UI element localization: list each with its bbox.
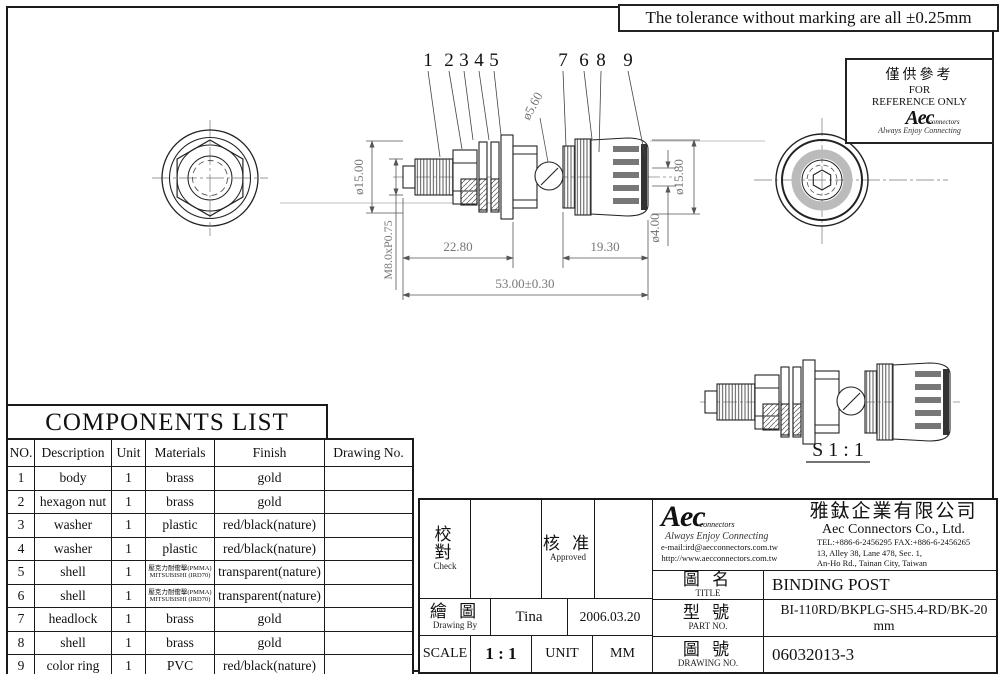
check-label-en: Check — [434, 562, 457, 571]
drawing-number: 06032013-3 — [772, 645, 854, 665]
row-3-material: plastic — [146, 514, 215, 538]
row-6-desc: shell — [35, 585, 112, 609]
row-1-material: brass — [146, 467, 215, 491]
row-8-no: 8 — [8, 632, 35, 656]
drawn-by-label-zh: 繪 圖 — [430, 603, 480, 621]
title-label-en: TITLE — [696, 589, 721, 598]
company-name-en: Aec Connectors Co., Ltd. — [822, 522, 965, 537]
part-no-label-en: PART NO. — [689, 622, 728, 631]
check-label-zh: 校 對 — [420, 526, 470, 562]
drawing-no-label-cell: 圖 號 DRAWING NO. — [653, 637, 764, 672]
title-block: 校 對 Check 核 准 Approved 繪 圖 Drawing By Ti… — [418, 498, 998, 674]
row-5-finish: transparent(nature) — [215, 561, 325, 585]
row-6-material: 壓克力耐衝擊(PMMA)MITSUBISHI (IRD70) — [146, 585, 215, 609]
reference-line1: FOR — [909, 84, 930, 97]
dim-cap-diameter: ø15.80 — [671, 159, 686, 195]
row-5-material: 壓克力耐衝擊(PMMA)MITSUBISHI (IRD70) — [146, 561, 215, 585]
row-3-no: 3 — [8, 514, 35, 538]
row-9-no: 9 — [8, 655, 35, 674]
row-4-finish: red/black(nature) — [215, 538, 325, 562]
row-5-desc: shell — [35, 561, 112, 585]
row-2-drawing-no — [325, 491, 412, 515]
aec-logo-titleblock-text: Aecconnectors — [661, 503, 705, 530]
row-5-drawing-no — [325, 561, 412, 585]
row-9-unit: 1 — [112, 655, 146, 674]
company-name-zh: 雅鈦企業有限公司 — [809, 502, 977, 522]
dim-thread-spec: M8.0xP0.75 — [381, 220, 395, 279]
aec-logo-sub: connectors — [929, 119, 960, 125]
dim-pin-diameter: ø4.00 — [647, 213, 662, 242]
row-9-drawing-no — [325, 655, 412, 674]
row-9-material: PVC — [146, 655, 215, 674]
callout-3: 3 — [459, 50, 469, 71]
approved-label-zh: 核 准 — [543, 535, 593, 553]
row-7-drawing-no — [325, 608, 412, 632]
row-4-material: plastic — [146, 538, 215, 562]
row-7-unit: 1 — [112, 608, 146, 632]
row-7-material: brass — [146, 608, 215, 632]
row-3-finish: red/black(nature) — [215, 514, 325, 538]
aec-logo-text: Aecconnectors — [905, 109, 933, 127]
callout-1: 1 — [423, 50, 433, 71]
front-view-left — [152, 120, 268, 236]
col-header-materials: Materials — [146, 440, 215, 467]
scale-value: 1 : 1 — [485, 644, 516, 664]
dim-length-left: 22.80 — [443, 239, 472, 254]
col-header-description: Description — [35, 440, 112, 467]
unit-label-cell: UNIT — [532, 636, 593, 672]
drawing-no-value-cell: 06032013-3 — [764, 637, 996, 672]
part-no-label-cell: 型 號 PART NO. — [653, 600, 764, 636]
col-header-drawing-no: Drawing No. — [325, 440, 412, 467]
company-tel-fax: TEL:+886-6-2456295 FAX:+886-6-2456265 — [817, 537, 970, 548]
title-label-zh: 圖 名 — [683, 571, 733, 589]
scale-label-cell: SCALE — [420, 636, 471, 672]
dim-body-diameter: ø15.00 — [351, 159, 366, 195]
row-7-desc: headlock — [35, 608, 112, 632]
components-list-title: COMPONENTS LIST — [6, 404, 328, 442]
tolerance-note-text: The tolerance without marking are all ±0… — [645, 8, 971, 28]
dim-hole-diameter: ø5.60 — [519, 89, 546, 122]
row-8-drawing-no — [325, 632, 412, 656]
company-logo-cell: Aecconnectors Always Enjoy Connecting e-… — [653, 500, 791, 570]
drawing-no-label-zh: 圖 號 — [683, 641, 733, 659]
drawn-by-label-cell: 繪 圖 Drawing By — [420, 599, 491, 635]
row-3-drawing-no — [325, 514, 412, 538]
row-3-unit: 1 — [112, 514, 146, 538]
aec-logo-titleblock: Aecconnectors Always Enjoy Connecting — [661, 503, 768, 541]
row-9-finish: red/black(nature) — [215, 655, 325, 674]
row-2-material: brass — [146, 491, 215, 515]
components-list-table: NO. Description Unit Materials Finish Dr… — [6, 438, 414, 674]
company-info-cell: 雅鈦企業有限公司 Aec Connectors Co., Ltd. TEL:+8… — [791, 500, 996, 570]
company-address2: An-Ho Rd., Tainan City, Taiwan — [817, 558, 970, 569]
callout-7: 7 — [558, 50, 568, 71]
row-6-no: 6 — [8, 585, 35, 609]
drawn-by-value-cell: Tina — [491, 599, 568, 635]
callout-8: 8 — [596, 50, 606, 71]
row-8-material: brass — [146, 632, 215, 656]
row-2-unit: 1 — [112, 491, 146, 515]
callout-4: 4 — [474, 50, 484, 71]
row-1-finish: gold — [215, 467, 325, 491]
drawn-by-label-en: Drawing By — [433, 621, 477, 630]
scale-label: SCALE — [423, 646, 467, 662]
row-1-no: 1 — [8, 467, 35, 491]
row-7-no: 7 — [8, 608, 35, 632]
callout-2: 2 — [444, 50, 454, 71]
callout-5: 5 — [489, 50, 499, 71]
title-value-cell: BINDING POST — [764, 571, 996, 599]
row-3-desc: washer — [35, 514, 112, 538]
dimensions — [366, 118, 700, 300]
reference-zh: 僅供參考 — [886, 68, 954, 84]
drawing-title: BINDING POST — [772, 575, 890, 595]
row-1-desc: body — [35, 467, 112, 491]
col-header-finish: Finish — [215, 440, 325, 467]
check-value-cell — [471, 500, 542, 598]
reference-only-stamp: 僅供參考 FOR REFERENCE ONLY Aecconnectors Al… — [845, 58, 994, 144]
row-8-finish: gold — [215, 632, 325, 656]
col-header-unit: Unit — [112, 440, 146, 467]
section-view-main — [403, 135, 648, 219]
approved-value-cell — [595, 500, 652, 598]
row-6-finish: transparent(nature) — [215, 585, 325, 609]
row-6-drawing-no — [325, 585, 412, 609]
approved-label-cell: 核 准 Approved — [542, 500, 595, 598]
part-no-label-zh: 型 號 — [683, 604, 733, 622]
company-website: http://www.aecconnectors.com.tw — [661, 553, 778, 564]
row-2-finish: gold — [215, 491, 325, 515]
row-1-unit: 1 — [112, 467, 146, 491]
unit-value-cell: MM — [593, 636, 652, 672]
row-7-finish: gold — [215, 608, 325, 632]
row-5-unit: 1 — [112, 561, 146, 585]
company-email: e-mail:ird@aecconnectors.com.tw — [661, 542, 778, 553]
callout-9: 9 — [623, 50, 633, 71]
row-4-no: 4 — [8, 538, 35, 562]
scale-view-label: S 1 : 1 — [812, 439, 864, 461]
row-4-unit: 1 — [112, 538, 146, 562]
row-4-desc: washer — [35, 538, 112, 562]
row-1-drawing-no — [325, 467, 412, 491]
approved-label-en: Approved — [550, 553, 586, 562]
part-number: BI-110RD/BKPLG-SH5.4-RD/BK-20mm — [772, 602, 996, 633]
row-4-drawing-no — [325, 538, 412, 562]
check-label-cell: 校 對 Check — [420, 500, 471, 598]
dim-length-total: 53.00±0.30 — [495, 276, 554, 291]
scale-value-cell: 1 : 1 — [471, 636, 532, 672]
drawing-no-label-en: DRAWING NO. — [678, 659, 738, 668]
engineering-drawing-sheet: 1 2 3 4 5 7 6 8 9 — [0, 0, 1000, 674]
drawn-by-name: Tina — [516, 609, 543, 626]
row-8-unit: 1 — [112, 632, 146, 656]
unit-value: MM — [610, 646, 635, 662]
row-9-desc: color ring — [35, 655, 112, 674]
unit-label: UNIT — [545, 646, 578, 662]
row-8-desc: shell — [35, 632, 112, 656]
dim-length-right: 19.30 — [590, 239, 619, 254]
callout-numbers: 1 2 3 4 5 7 6 8 9 — [423, 50, 633, 71]
aec-logo-titleblock-script: Always Enjoy Connecting — [665, 532, 768, 541]
part-no-value-cell: BI-110RD/BKPLG-SH5.4-RD/BK-20mm — [764, 600, 996, 636]
drawn-date-cell: 2006.03.20 — [568, 599, 652, 635]
row-2-no: 2 — [8, 491, 35, 515]
company-address1: 13, Alley 38, Lane 478, Sec. 1, — [817, 548, 970, 559]
row-2-desc: hexagon nut — [35, 491, 112, 515]
title-label-cell: 圖 名 TITLE — [653, 571, 764, 599]
row-6-unit: 1 — [112, 585, 146, 609]
aec-logo: Aecconnectors Always Enjoy Connecting — [878, 109, 961, 134]
col-header-no: NO. — [8, 440, 35, 467]
tolerance-note-box: The tolerance without marking are all ±0… — [618, 4, 999, 32]
row-5-no: 5 — [8, 561, 35, 585]
section-view-scale — [705, 360, 950, 444]
callout-6: 6 — [579, 50, 589, 71]
drawn-date: 2006.03.20 — [580, 609, 641, 625]
